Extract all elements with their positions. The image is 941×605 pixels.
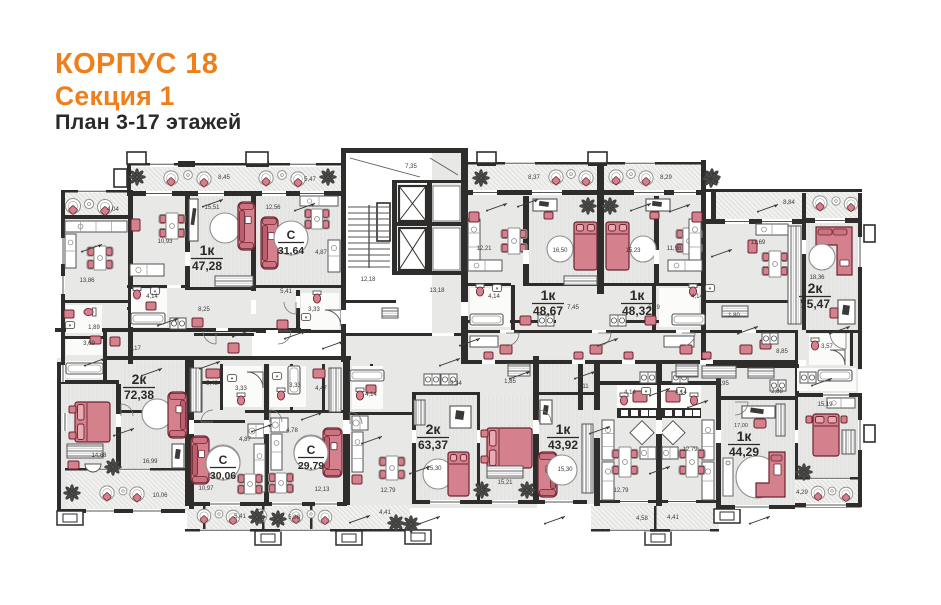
- svg-text:2к: 2к: [426, 421, 442, 437]
- svg-text:6,19: 6,19: [648, 305, 660, 311]
- svg-text:С: С: [287, 228, 296, 242]
- svg-text:12,21: 12,21: [476, 246, 492, 252]
- svg-text:11,98: 11,98: [667, 246, 682, 252]
- svg-text:18,36: 18,36: [809, 275, 825, 281]
- svg-text:10,97: 10,97: [198, 486, 214, 492]
- svg-text:5,95: 5,95: [717, 381, 729, 387]
- svg-text:4,58: 4,58: [636, 516, 648, 522]
- svg-text:16,50: 16,50: [552, 248, 568, 254]
- svg-text:4,14: 4,14: [146, 294, 158, 300]
- svg-text:15,21: 15,21: [497, 480, 513, 486]
- svg-text:12,18: 12,18: [360, 277, 376, 283]
- svg-text:8,37: 8,37: [528, 175, 540, 181]
- svg-text:План 3-17 этажей: План 3-17 этажей: [55, 110, 241, 134]
- svg-text:4,29: 4,29: [796, 490, 808, 496]
- svg-text:1,85: 1,85: [504, 379, 516, 385]
- svg-text:4,78: 4,78: [286, 428, 298, 434]
- svg-text:17,00: 17,00: [734, 423, 748, 429]
- svg-text:Секция 1: Секция 1: [55, 81, 175, 111]
- svg-text:1к: 1к: [737, 428, 753, 444]
- svg-text:12,13: 12,13: [314, 487, 330, 493]
- svg-text:8,25: 8,25: [198, 307, 210, 313]
- svg-text:7,35: 7,35: [405, 164, 417, 170]
- svg-text:4,14: 4,14: [365, 392, 377, 398]
- svg-text:8,84: 8,84: [783, 200, 795, 206]
- svg-text:10,93: 10,93: [157, 239, 173, 245]
- svg-text:4,41: 4,41: [667, 515, 679, 521]
- svg-text:15,30: 15,30: [557, 467, 573, 473]
- svg-text:1,80: 1,80: [728, 313, 740, 319]
- svg-text:4,14: 4,14: [691, 294, 703, 300]
- svg-text:5,48: 5,48: [206, 381, 218, 387]
- svg-text:КОРПУС 18: КОРПУС 18: [55, 48, 218, 80]
- svg-text:5,08: 5,08: [288, 515, 300, 521]
- svg-text:12,79: 12,79: [613, 488, 629, 494]
- svg-text:3,33: 3,33: [235, 386, 247, 392]
- svg-text:С: С: [307, 443, 316, 457]
- svg-text:43,92: 43,92: [548, 438, 578, 452]
- svg-text:5,47: 5,47: [304, 177, 316, 183]
- svg-text:12,56: 12,56: [265, 205, 281, 211]
- svg-text:15,30: 15,30: [426, 466, 442, 472]
- svg-text:12,79: 12,79: [682, 447, 698, 453]
- svg-text:14,68: 14,68: [91, 453, 107, 459]
- svg-text:30,06: 30,06: [210, 470, 236, 482]
- svg-text:4,87: 4,87: [239, 437, 251, 443]
- svg-text:3,33: 3,33: [289, 383, 301, 389]
- svg-text:1к: 1к: [556, 421, 572, 437]
- svg-text:8,45: 8,45: [218, 175, 230, 181]
- svg-text:8,29: 8,29: [660, 175, 672, 181]
- svg-text:4,14: 4,14: [488, 294, 500, 300]
- svg-text:4,41: 4,41: [379, 510, 391, 516]
- svg-text:5,41: 5,41: [234, 514, 246, 520]
- svg-text:4,14: 4,14: [675, 390, 687, 396]
- svg-text:1к: 1к: [630, 287, 646, 303]
- svg-text:72,38: 72,38: [124, 388, 154, 402]
- svg-text:1к: 1к: [541, 287, 557, 303]
- svg-text:8,85: 8,85: [776, 349, 788, 355]
- svg-text:3,57: 3,57: [821, 344, 833, 350]
- svg-text:48,67: 48,67: [533, 304, 563, 318]
- svg-text:3,69: 3,69: [83, 341, 95, 347]
- svg-text:9,34: 9,34: [450, 381, 462, 387]
- svg-text:12,79: 12,79: [380, 488, 396, 494]
- svg-text:1,89: 1,89: [88, 325, 100, 331]
- svg-text:13,18: 13,18: [429, 288, 445, 294]
- svg-text:7,11: 7,11: [577, 384, 589, 390]
- svg-text:15,51: 15,51: [204, 205, 220, 211]
- svg-text:7,45: 7,45: [567, 305, 579, 311]
- svg-text:15,19: 15,19: [817, 402, 833, 408]
- svg-text:4,04: 4,04: [107, 207, 119, 213]
- svg-text:75,47: 75,47: [800, 297, 830, 311]
- svg-text:4,14: 4,14: [624, 390, 636, 396]
- svg-text:47,28: 47,28: [192, 259, 222, 273]
- svg-text:4,47: 4,47: [315, 386, 327, 392]
- svg-text:29,79: 29,79: [298, 460, 324, 472]
- svg-text:С: С: [219, 453, 228, 467]
- svg-text:31,64: 31,64: [278, 245, 304, 257]
- svg-text:3,33: 3,33: [308, 307, 320, 313]
- svg-text:2к: 2к: [808, 280, 824, 296]
- svg-text:5,41: 5,41: [280, 289, 292, 295]
- svg-text:16,99: 16,99: [142, 459, 158, 465]
- svg-text:63,37: 63,37: [418, 438, 448, 452]
- svg-text:15,23: 15,23: [625, 248, 641, 254]
- svg-text:1к: 1к: [200, 242, 216, 258]
- svg-text:2к: 2к: [132, 371, 148, 387]
- svg-text:13,86: 13,86: [79, 278, 95, 284]
- svg-text:4,87: 4,87: [315, 250, 327, 256]
- svg-text:10,06: 10,06: [152, 493, 168, 499]
- svg-text:7,17: 7,17: [129, 346, 141, 352]
- svg-text:2,88: 2,88: [771, 389, 783, 395]
- svg-text:44,29: 44,29: [729, 445, 759, 459]
- svg-text:11,69: 11,69: [751, 240, 766, 246]
